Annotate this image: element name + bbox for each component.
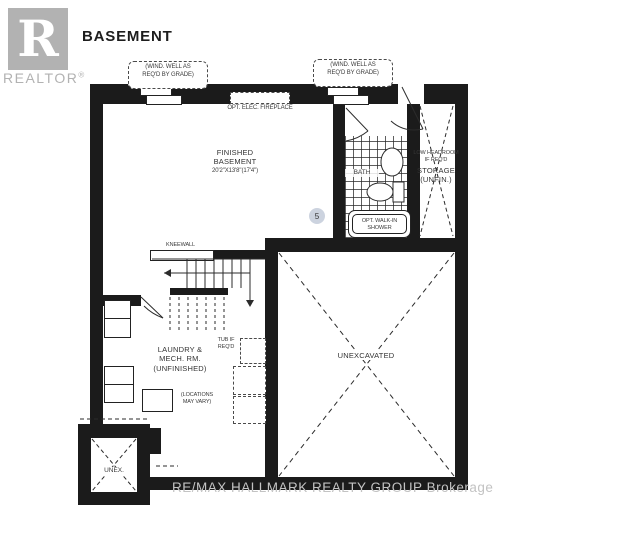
stair-winder-treads xyxy=(170,297,224,331)
stair-treads xyxy=(187,259,250,288)
finished-basement-dimensions: 20'2"X13'8"(17'4") xyxy=(195,168,275,176)
locations-line1: (LOCATIONS xyxy=(174,392,220,399)
laundry-appliance-c xyxy=(142,389,173,412)
window-well-note-left-line2: REQ'D BY GRADE) xyxy=(129,72,207,80)
window-left-inner xyxy=(146,95,182,105)
window-well-note-right: (WIND. WELL AS REQ'D BY GRADE) xyxy=(313,59,393,87)
laundry-door-arc xyxy=(144,306,163,318)
stair-arrow-head-up xyxy=(164,269,171,277)
laundry-line2: MECH. RM. xyxy=(130,354,230,363)
room-unex-label: UNEX. xyxy=(96,458,132,478)
floorplan-page: R REALTOR® BASEMENT (WIND. WELL AS REQ'D… xyxy=(0,0,641,543)
storage-line3: STORAGE xyxy=(405,166,467,175)
window-well-note-right-line1: (WIND. WELL AS xyxy=(314,62,392,70)
storage-line1: LOW HEADROOM xyxy=(405,150,467,157)
unex-name: UNEX. xyxy=(102,467,126,475)
optional-fireplace-outline xyxy=(230,92,290,104)
optional-shower-label: OPT. WALK-IN SHOWER xyxy=(349,218,410,232)
wall-unex-right xyxy=(137,424,150,505)
laundry-door-leaf xyxy=(141,297,163,318)
tub-line1: TUB IF xyxy=(212,337,240,344)
locations-may-vary-label: (LOCATIONS MAY VARY) xyxy=(174,392,220,406)
registered-trademark-symbol: ® xyxy=(78,70,85,79)
furnace-block xyxy=(150,428,161,454)
room-storage-label: LOW HEADROOM IF REQ'D STORAGE (UNFIN.) xyxy=(405,150,467,185)
tub-line2: REQ'D xyxy=(212,344,240,351)
stair-landing-edge xyxy=(170,288,228,295)
realtor-logo-icon: R xyxy=(8,8,68,70)
kneewall-outline xyxy=(150,250,214,261)
realtor-logo-letter: R xyxy=(17,14,59,64)
wall-stair-head xyxy=(212,250,265,259)
room-unexcavated-label: UNEXCAVATED xyxy=(316,344,416,364)
optional-shower-outline: OPT. WALK-IN SHOWER xyxy=(348,210,411,238)
wall-bath-left xyxy=(333,104,345,238)
realtor-wordmark: REALTOR® xyxy=(3,70,93,86)
wall-unexcavated-top xyxy=(265,238,468,252)
laundry-fixture-upper-b xyxy=(104,318,131,338)
wall-left xyxy=(90,84,103,426)
window-well-note-left: (WIND. WELL AS REQ'D BY GRADE) xyxy=(128,61,208,89)
finished-basement-line2: BASEMENT xyxy=(195,157,275,166)
mech-equipment-outline-a xyxy=(233,366,266,395)
unexcavated-x-line-2 xyxy=(279,253,454,476)
mech-equipment-outline-b xyxy=(233,396,266,424)
kneewall-label: KNEEWALL xyxy=(166,242,206,249)
bath-door-leaf xyxy=(346,108,368,131)
laundry-fixture-upper-a xyxy=(104,300,131,319)
window-well-note-left-line1: (WIND. WELL AS xyxy=(129,64,207,72)
optional-shower-line1: OPT. WALK-IN xyxy=(349,218,410,225)
tub-if-reqd-label: TUB IF REQ'D xyxy=(212,337,240,351)
room-bath-label: BATH xyxy=(345,169,379,177)
window-right-inner xyxy=(333,95,369,105)
page-title: BASEMENT xyxy=(82,28,173,45)
door-opening-top xyxy=(398,84,424,104)
finished-basement-line1: FINISHED xyxy=(195,148,275,157)
keynote-5-number: 5 xyxy=(315,212,319,221)
optional-shower-line2: SHOWER xyxy=(349,225,410,232)
stair-arrow-head-down xyxy=(246,300,254,307)
storage-line2: IF REQ'D xyxy=(405,157,467,164)
optional-tub-outline xyxy=(240,338,266,364)
wall-right xyxy=(455,84,468,490)
brokerage-watermark-text: RE/MAX HALLMARK REALTY GROUP Brokerage xyxy=(172,480,493,495)
room-finished-basement-label: FINISHED BASEMENT 20'2"X13'8"(17'4") xyxy=(195,148,275,175)
laundry-line3: (UNFINISHED) xyxy=(130,364,230,373)
wall-unexcavated-left xyxy=(265,238,278,490)
unexcavated-name: UNEXCAVATED xyxy=(336,351,397,360)
brokerage-watermark: RE/MAX HALLMARK REALTY GROUP Brokerage xyxy=(172,480,493,495)
keynote-5-badge: 5 xyxy=(309,208,325,224)
unexcavated-x-line-1 xyxy=(279,253,454,476)
laundry-appliance-b xyxy=(104,384,134,403)
storage-line4: (UNFIN.) xyxy=(405,175,467,184)
realtor-wordmark-text: REALTOR xyxy=(3,70,78,86)
optional-fireplace-label: OPT. ELEC. FIREPLACE xyxy=(222,105,298,113)
window-well-note-right-line2: REQ'D BY GRADE) xyxy=(314,70,392,78)
locations-line2: MAY VARY) xyxy=(174,399,220,406)
laundry-appliance-a xyxy=(104,366,134,385)
